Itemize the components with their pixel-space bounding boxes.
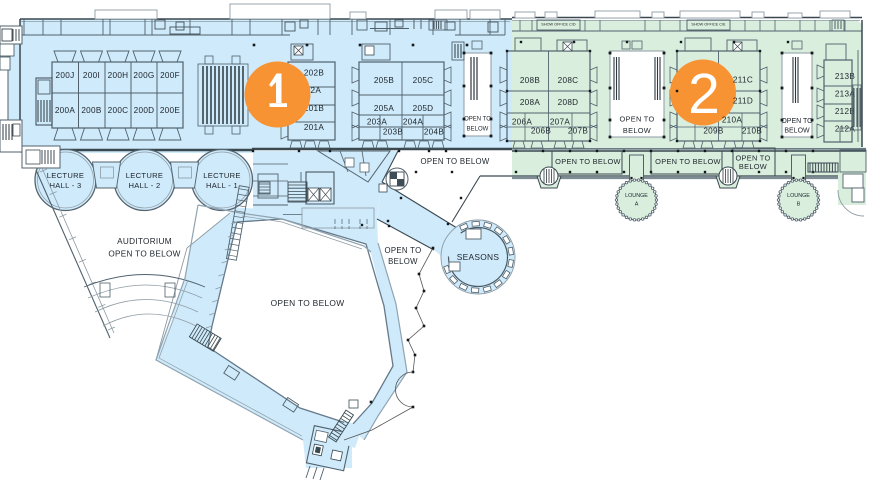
- svg-text:200F: 200F: [160, 71, 180, 80]
- svg-text:BELOW: BELOW: [467, 127, 489, 133]
- svg-text:200B: 200B: [81, 106, 102, 115]
- svg-text:OPEN TO BELOW: OPEN TO BELOW: [420, 157, 489, 166]
- svg-text:208D: 208D: [558, 98, 579, 107]
- svg-text:200G: 200G: [133, 71, 154, 80]
- svg-text:200A: 200A: [55, 106, 76, 115]
- svg-text:OPEN TO BELOW: OPEN TO BELOW: [655, 157, 721, 166]
- svg-text:205C: 205C: [413, 76, 434, 85]
- svg-text:SHOW OFFICE C/D: SHOW OFFICE C/D: [541, 23, 576, 27]
- svg-text:208C: 208C: [558, 76, 579, 85]
- svg-text:OPEN TO BELOW: OPEN TO BELOW: [555, 157, 621, 166]
- svg-text:OPEN TO: OPEN TO: [781, 118, 813, 125]
- svg-text:HALL - 2: HALL - 2: [128, 181, 160, 190]
- svg-text:HALL - 3: HALL - 3: [49, 181, 81, 190]
- svg-text:HALL - 1: HALL - 1: [206, 181, 238, 190]
- svg-text:201A: 201A: [304, 123, 325, 132]
- svg-text:BELOW: BELOW: [388, 257, 418, 266]
- svg-text:200E: 200E: [160, 106, 181, 115]
- svg-text:203A: 203A: [367, 118, 388, 127]
- svg-text:205D: 205D: [413, 104, 434, 113]
- svg-text:206A: 206A: [512, 118, 533, 127]
- svg-text:200H: 200H: [108, 71, 129, 80]
- svg-text:LECTURE: LECTURE: [126, 171, 164, 180]
- svg-text:206B: 206B: [531, 127, 552, 136]
- svg-text:205A: 205A: [374, 104, 395, 113]
- svg-text:LECTURE: LECTURE: [203, 171, 241, 180]
- svg-text:203B: 203B: [383, 128, 404, 137]
- svg-text:204A: 204A: [403, 118, 424, 127]
- svg-text:LOUNGE: LOUNGE: [625, 193, 648, 199]
- svg-text:BELOW: BELOW: [739, 162, 767, 171]
- svg-text:BELOW: BELOW: [784, 128, 810, 135]
- svg-text:OPEN TO: OPEN TO: [464, 117, 491, 123]
- svg-text:SHOW OFFICE C/E: SHOW OFFICE C/E: [691, 23, 726, 27]
- svg-text:208A: 208A: [520, 98, 541, 107]
- svg-text:SEASONS: SEASONS: [457, 252, 500, 262]
- svg-text:205B: 205B: [374, 76, 395, 85]
- svg-text:LOUNGE: LOUNGE: [787, 193, 810, 199]
- svg-text:211D: 211D: [733, 97, 753, 106]
- svg-text:200J: 200J: [56, 71, 75, 80]
- svg-text:202B: 202B: [304, 69, 325, 78]
- svg-text:BELOW: BELOW: [623, 126, 651, 135]
- svg-text:208B: 208B: [520, 76, 541, 85]
- svg-text:AUDITORIUM: AUDITORIUM: [117, 237, 172, 246]
- svg-text:200I: 200I: [83, 71, 100, 80]
- svg-text:210A: 210A: [722, 116, 743, 125]
- svg-text:207B: 207B: [568, 127, 589, 136]
- svg-text:B: B: [797, 202, 801, 208]
- svg-text:210B: 210B: [742, 127, 763, 136]
- svg-text:OPEN TO BELOW: OPEN TO BELOW: [108, 250, 180, 259]
- svg-text:OPEN TO BELOW: OPEN TO BELOW: [271, 298, 345, 308]
- svg-text:A: A: [635, 202, 639, 208]
- svg-text:200C: 200C: [108, 106, 129, 115]
- svg-text:2: 2: [688, 62, 720, 126]
- svg-text:LECTURE: LECTURE: [47, 171, 85, 180]
- svg-text:211C: 211C: [733, 76, 753, 85]
- svg-text:200D: 200D: [134, 106, 155, 115]
- svg-text:OPEN TO: OPEN TO: [619, 115, 654, 124]
- svg-text:204B: 204B: [424, 128, 445, 137]
- svg-text:OPEN TO: OPEN TO: [385, 246, 422, 255]
- svg-text:207A: 207A: [550, 118, 571, 127]
- svg-text:209B: 209B: [703, 127, 724, 136]
